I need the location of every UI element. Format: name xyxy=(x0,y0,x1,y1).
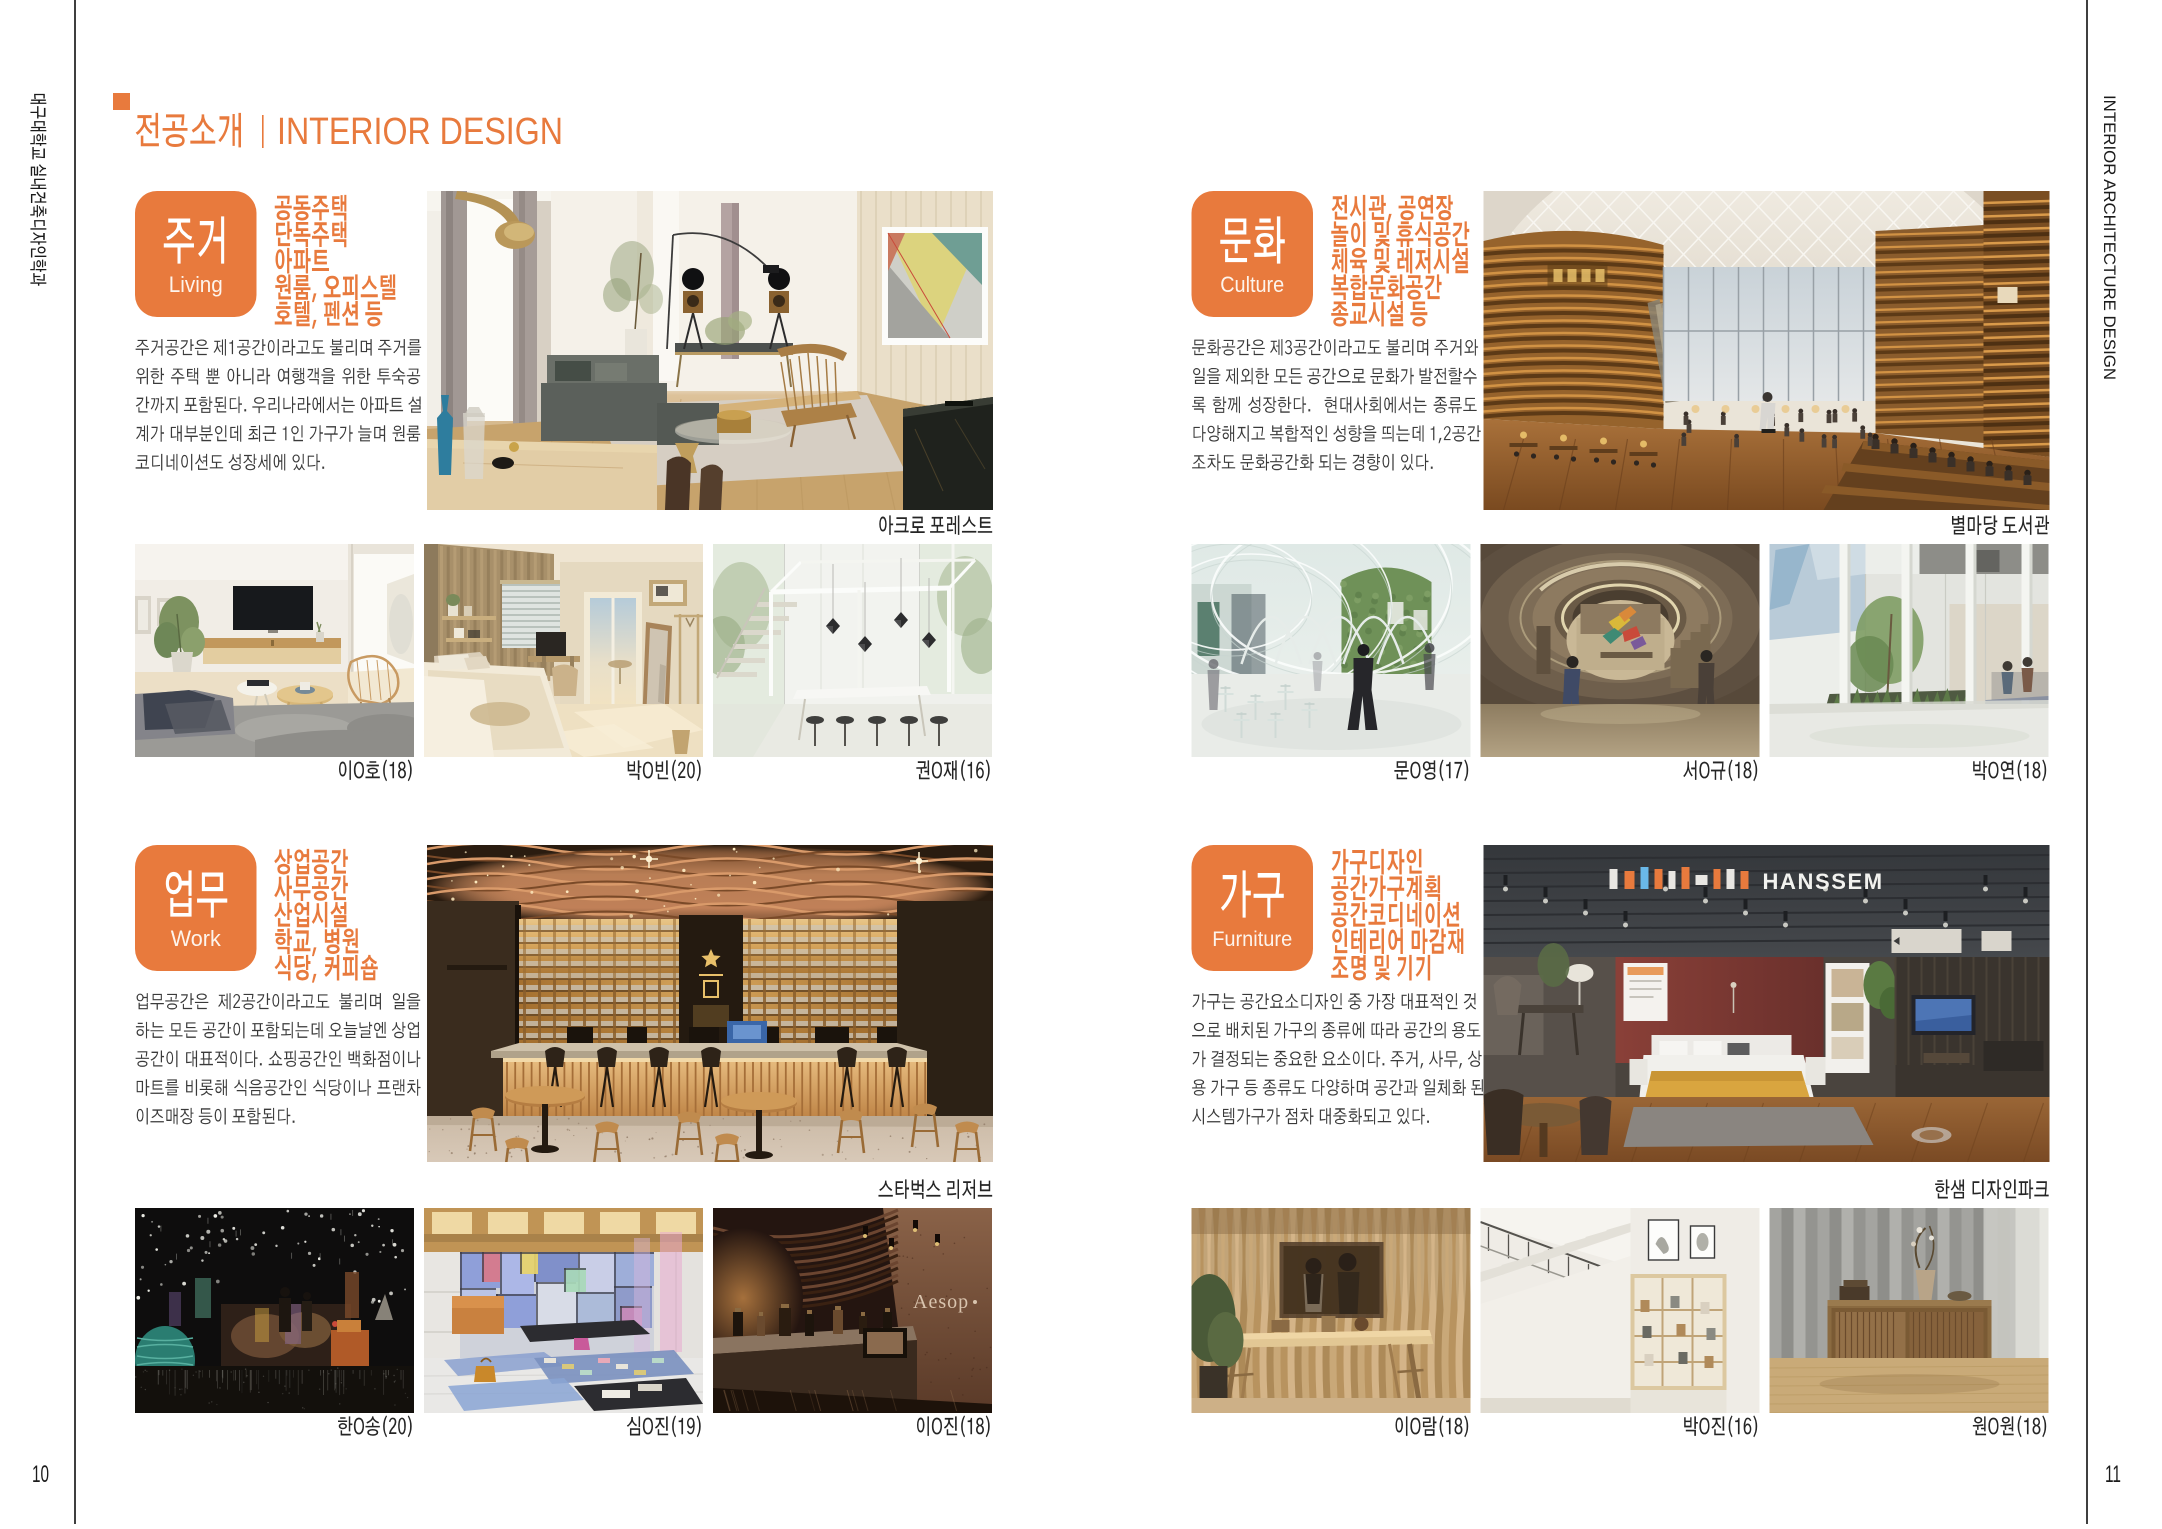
svg-text:Work: Work xyxy=(171,926,222,951)
svg-text:INTERIOR DESIGN: INTERIOR DESIGN xyxy=(277,111,563,153)
svg-text:HANSSEM: HANSSEM xyxy=(1763,869,1884,894)
svg-text:Living: Living xyxy=(169,272,223,297)
svg-text:Aesop: Aesop xyxy=(913,1291,969,1313)
svg-text:Furniture: Furniture xyxy=(1212,928,1292,951)
svg-text:Culture: Culture xyxy=(1220,272,1284,297)
svg-text:11: 11 xyxy=(2105,1461,2121,1488)
svg-text:INTERIOR ARCHITECTURE DESIGN: INTERIOR ARCHITECTURE DESIGN xyxy=(2100,95,2119,380)
svg-text:10: 10 xyxy=(32,1461,49,1488)
